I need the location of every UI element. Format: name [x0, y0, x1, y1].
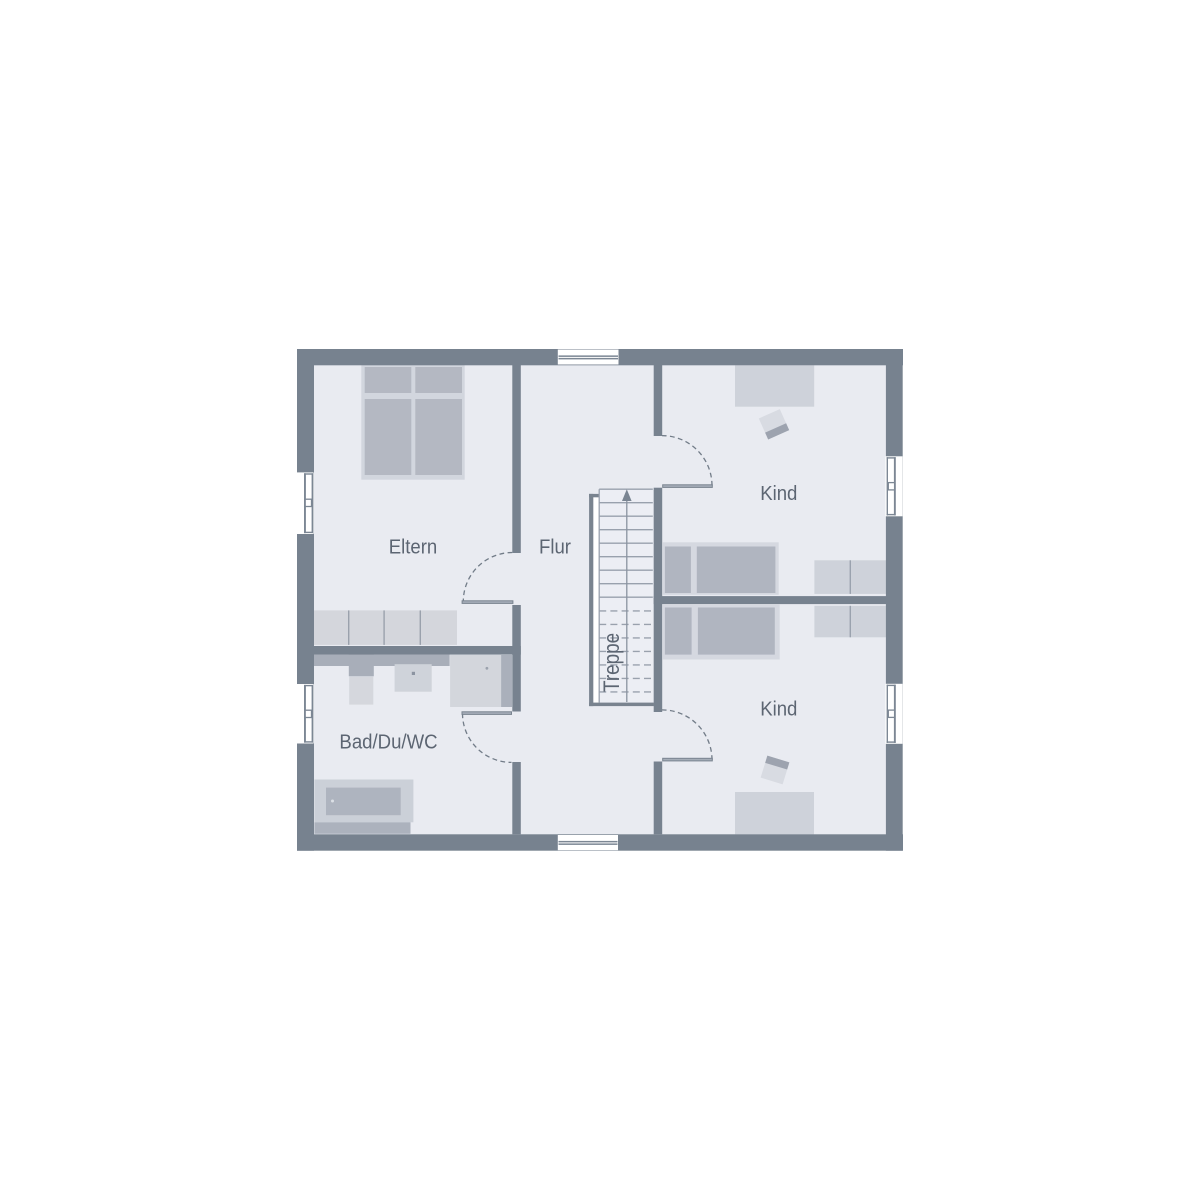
svg-text:Treppe: Treppe [600, 633, 625, 692]
svg-text:Kind: Kind [760, 699, 797, 721]
svg-text:Eltern: Eltern [389, 537, 438, 559]
svg-text:Bad/Du/WC: Bad/Du/WC [339, 732, 437, 754]
svg-text:Flur: Flur [539, 537, 572, 559]
svg-text:Kind: Kind [760, 483, 797, 505]
